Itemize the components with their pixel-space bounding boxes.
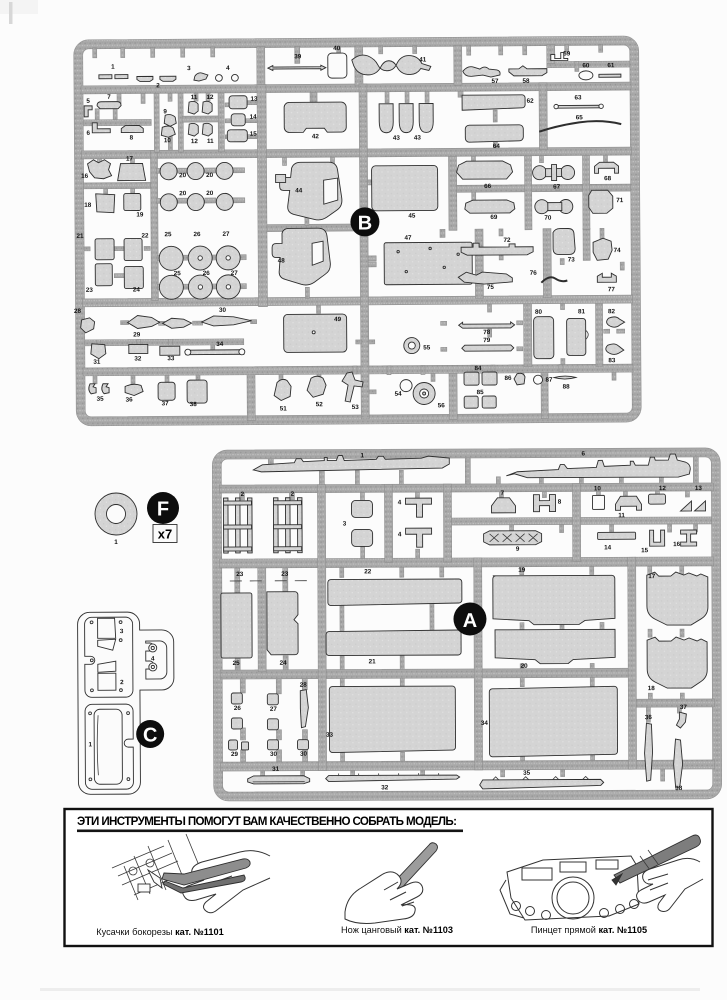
svg-text:25: 25 (174, 270, 182, 277)
svg-text:4: 4 (398, 531, 402, 538)
svg-text:27: 27 (270, 706, 278, 713)
svg-text:36: 36 (645, 714, 653, 721)
svg-text:23: 23 (281, 571, 289, 578)
svg-text:65: 65 (576, 114, 584, 121)
svg-text:37: 37 (680, 704, 688, 711)
svg-text:2: 2 (241, 491, 245, 498)
svg-text:19: 19 (518, 567, 526, 574)
svg-text:1: 1 (88, 741, 92, 748)
svg-text:16: 16 (673, 541, 681, 548)
svg-text:39: 39 (294, 53, 302, 60)
svg-text:18: 18 (84, 202, 92, 209)
svg-text:25: 25 (233, 660, 241, 667)
svg-text:12: 12 (659, 485, 667, 492)
svg-text:57: 57 (491, 78, 499, 85)
svg-text:9: 9 (516, 546, 520, 553)
svg-text:29: 29 (133, 331, 141, 338)
svg-text:17: 17 (126, 156, 134, 163)
svg-text:61: 61 (607, 62, 615, 69)
svg-text:1: 1 (114, 539, 118, 546)
svg-text:48: 48 (278, 257, 286, 264)
svg-text:7: 7 (501, 490, 505, 497)
svg-text:54: 54 (395, 391, 403, 398)
svg-text:73: 73 (568, 256, 576, 263)
svg-text:40: 40 (333, 45, 341, 52)
svg-text:15: 15 (250, 131, 258, 138)
svg-text:55: 55 (423, 344, 431, 351)
svg-text:75: 75 (487, 284, 495, 291)
svg-text:30: 30 (219, 307, 227, 314)
svg-text:20: 20 (521, 663, 529, 670)
svg-text:45: 45 (408, 213, 416, 220)
svg-text:12: 12 (207, 94, 215, 101)
svg-text:43: 43 (414, 135, 422, 142)
svg-text:3: 3 (187, 65, 191, 72)
svg-text:23: 23 (236, 571, 244, 578)
svg-text:4: 4 (226, 65, 230, 72)
svg-text:2: 2 (291, 491, 295, 498)
svg-text:71: 71 (616, 197, 624, 204)
svg-text:35: 35 (523, 770, 531, 777)
svg-text:30: 30 (300, 751, 308, 758)
svg-text:3: 3 (343, 520, 347, 527)
svg-text:7: 7 (107, 94, 111, 101)
svg-text:53: 53 (352, 404, 360, 411)
svg-text:79: 79 (483, 337, 491, 344)
svg-text:1: 1 (111, 64, 115, 71)
svg-text:6: 6 (87, 130, 91, 137)
svg-text:22: 22 (141, 232, 149, 239)
svg-text:56: 56 (438, 402, 446, 409)
svg-text:69: 69 (490, 214, 498, 221)
svg-text:11: 11 (618, 512, 625, 519)
svg-text:10: 10 (594, 485, 602, 492)
svg-text:3: 3 (120, 628, 124, 635)
svg-text:66: 66 (484, 183, 492, 190)
svg-text:5: 5 (86, 98, 90, 105)
svg-text:C: C (143, 724, 158, 746)
svg-text:25: 25 (164, 231, 172, 238)
svg-text:13: 13 (695, 485, 703, 492)
svg-text:8: 8 (130, 135, 134, 142)
svg-text:87: 87 (545, 377, 553, 384)
svg-text:85: 85 (477, 389, 485, 396)
svg-text:83: 83 (608, 357, 616, 364)
svg-text:19: 19 (136, 211, 144, 218)
svg-text:88: 88 (563, 383, 571, 390)
svg-text:82: 82 (608, 308, 616, 315)
svg-text:6: 6 (581, 450, 585, 457)
svg-text:84: 84 (474, 365, 482, 372)
svg-text:23: 23 (86, 287, 94, 294)
svg-text:24: 24 (280, 660, 288, 667)
svg-text:74: 74 (614, 247, 622, 254)
svg-text:31: 31 (272, 766, 280, 773)
svg-text:77: 77 (608, 286, 616, 293)
svg-text:78: 78 (483, 329, 491, 336)
svg-text:63: 63 (575, 94, 583, 101)
svg-text:24: 24 (133, 286, 141, 293)
svg-text:20: 20 (206, 190, 214, 197)
svg-text:26: 26 (203, 270, 211, 277)
svg-text:13: 13 (251, 96, 259, 103)
svg-text:17: 17 (648, 573, 656, 580)
svg-text:10: 10 (164, 137, 172, 144)
svg-text:72: 72 (504, 237, 512, 244)
svg-text:81: 81 (578, 308, 586, 315)
svg-text:64: 64 (493, 143, 501, 150)
svg-text:27: 27 (222, 231, 230, 238)
svg-text:15: 15 (641, 547, 649, 554)
svg-text:67: 67 (553, 184, 561, 191)
svg-text:34: 34 (216, 341, 224, 348)
svg-text:76: 76 (530, 270, 538, 277)
svg-text:Нож цанговый кат. №1103: Нож цанговый кат. №1103 (341, 925, 453, 935)
svg-text:29: 29 (231, 751, 239, 758)
svg-text:52: 52 (316, 401, 324, 408)
svg-text:58: 58 (522, 78, 530, 85)
svg-text:33: 33 (326, 732, 334, 739)
svg-text:F: F (157, 499, 169, 521)
svg-text:41: 41 (419, 56, 427, 63)
svg-text:x7: x7 (158, 527, 172, 542)
svg-text:4: 4 (151, 655, 155, 662)
svg-text:34: 34 (481, 720, 489, 727)
svg-text:20: 20 (179, 172, 187, 179)
svg-text:22: 22 (364, 568, 372, 575)
svg-text:21: 21 (369, 658, 377, 665)
svg-text:35: 35 (97, 396, 105, 403)
svg-text:70: 70 (544, 215, 552, 222)
svg-text:49: 49 (334, 316, 342, 323)
svg-text:27: 27 (231, 270, 239, 277)
svg-text:12: 12 (191, 138, 199, 145)
svg-text:20: 20 (206, 172, 214, 179)
svg-text:9: 9 (163, 108, 167, 115)
svg-text:44: 44 (295, 187, 303, 194)
svg-text:28: 28 (74, 308, 82, 315)
svg-text:60: 60 (582, 62, 590, 69)
svg-text:18: 18 (648, 685, 656, 692)
svg-text:Кусачки бокорезы кат. №1101: Кусачки бокорезы кат. №1101 (96, 927, 224, 937)
svg-text:2: 2 (120, 679, 124, 686)
svg-text:26: 26 (193, 231, 201, 238)
svg-text:32: 32 (134, 355, 142, 362)
svg-text:11: 11 (191, 94, 198, 101)
svg-text:14: 14 (250, 114, 258, 121)
svg-text:26: 26 (234, 705, 242, 712)
svg-text:1: 1 (360, 452, 364, 459)
svg-text:8: 8 (558, 499, 562, 506)
svg-text:16: 16 (81, 173, 89, 180)
svg-text:4: 4 (398, 499, 402, 506)
svg-text:37: 37 (162, 400, 170, 407)
svg-text:14: 14 (604, 544, 612, 551)
svg-text:42: 42 (312, 133, 320, 140)
svg-text:38: 38 (675, 785, 683, 792)
svg-text:59: 59 (563, 50, 571, 57)
svg-text:36: 36 (126, 397, 134, 404)
svg-text:68: 68 (604, 175, 612, 182)
svg-text:62: 62 (527, 98, 535, 105)
svg-text:86: 86 (504, 375, 512, 382)
svg-text:31: 31 (93, 359, 101, 366)
svg-text:33: 33 (167, 355, 175, 362)
svg-text:Пинцет прямой кат. №1105: Пинцет прямой кат. №1105 (531, 925, 647, 935)
svg-text:B: B (358, 212, 373, 234)
svg-text:28: 28 (300, 682, 308, 689)
svg-text:38: 38 (190, 401, 198, 408)
svg-text:80: 80 (535, 309, 543, 316)
svg-text:32: 32 (381, 784, 389, 791)
svg-text:51: 51 (280, 405, 288, 412)
svg-text:2: 2 (156, 82, 160, 89)
svg-text:11: 11 (207, 138, 214, 145)
svg-text:ЭТИ ИНСТРУМЕНТЫ ПОМОГУТ ВАМ КА: ЭТИ ИНСТРУМЕНТЫ ПОМОГУТ ВАМ КАЧЕСТВЕННО … (77, 815, 457, 828)
svg-text:21: 21 (76, 233, 84, 240)
svg-text:20: 20 (179, 190, 187, 197)
svg-text:30: 30 (270, 751, 278, 758)
svg-text:43: 43 (393, 135, 401, 142)
svg-text:47: 47 (405, 235, 413, 242)
svg-text:A: A (463, 610, 478, 632)
